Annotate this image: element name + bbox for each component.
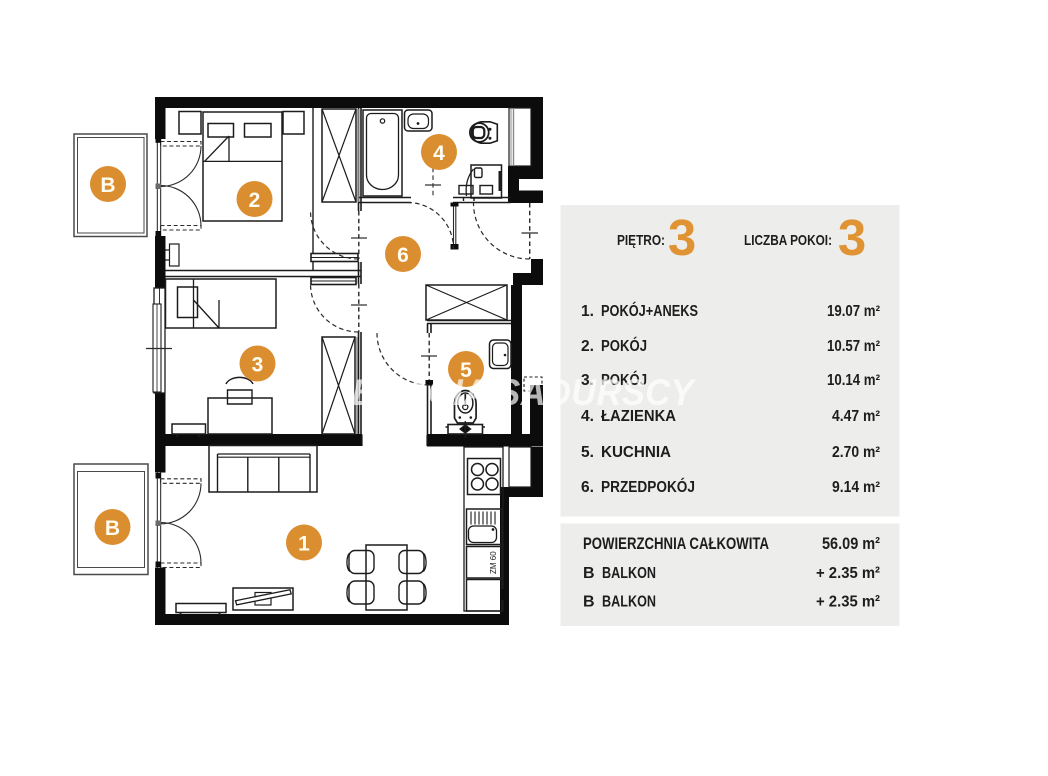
- svg-text:1.: 1.: [581, 303, 594, 320]
- svg-text:3: 3: [668, 209, 696, 266]
- svg-text:B: B: [100, 174, 115, 197]
- svg-text:6: 6: [397, 244, 409, 267]
- svg-text:56.09 m²: 56.09 m²: [822, 534, 880, 553]
- svg-text:2.70 m²: 2.70 m²: [832, 444, 880, 461]
- svg-text:10.14 m²: 10.14 m²: [827, 372, 880, 389]
- svg-text:BALKON: BALKON: [602, 594, 656, 611]
- svg-text:+ 2.35 m²: + 2.35 m²: [816, 594, 880, 611]
- svg-text:B: B: [583, 594, 595, 611]
- svg-text:10.57 m²: 10.57 m²: [827, 338, 880, 355]
- svg-text:PRZEDPOKÓJ: PRZEDPOKÓJ: [601, 478, 695, 496]
- svg-text:19.07 m²: 19.07 m²: [827, 303, 880, 320]
- svg-text:5.: 5.: [581, 444, 594, 461]
- svg-text:BRACIA SADURSCY: BRACIA SADURSCY: [352, 372, 697, 413]
- svg-text:+ 2.35 m²: + 2.35 m²: [816, 565, 880, 582]
- svg-text:4: 4: [433, 142, 445, 165]
- svg-text:LICZBA POKOI:: LICZBA POKOI:: [744, 232, 832, 249]
- svg-text:2: 2: [249, 189, 261, 212]
- svg-text:3: 3: [252, 354, 264, 377]
- svg-text:ZM 60: ZM 60: [489, 551, 498, 574]
- svg-text:PIĘTRO:: PIĘTRO:: [617, 232, 665, 249]
- svg-text:9.14 m²: 9.14 m²: [832, 479, 880, 496]
- svg-text:KUCHNIA: KUCHNIA: [601, 444, 671, 461]
- svg-text:1: 1: [298, 533, 310, 556]
- svg-text:3: 3: [838, 209, 866, 266]
- svg-text:2.: 2.: [581, 338, 594, 355]
- svg-text:POKÓJ+ANEKS: POKÓJ+ANEKS: [601, 302, 698, 320]
- svg-text:BALKON: BALKON: [602, 565, 656, 582]
- svg-text:B: B: [583, 565, 595, 582]
- svg-text:6.: 6.: [581, 479, 594, 496]
- svg-text:POKÓJ: POKÓJ: [601, 337, 647, 355]
- svg-text:4.47 m²: 4.47 m²: [832, 408, 880, 425]
- svg-text:B: B: [105, 517, 120, 540]
- svg-text:POWIERZCHNIA CAŁKOWITA: POWIERZCHNIA CAŁKOWITA: [583, 534, 769, 553]
